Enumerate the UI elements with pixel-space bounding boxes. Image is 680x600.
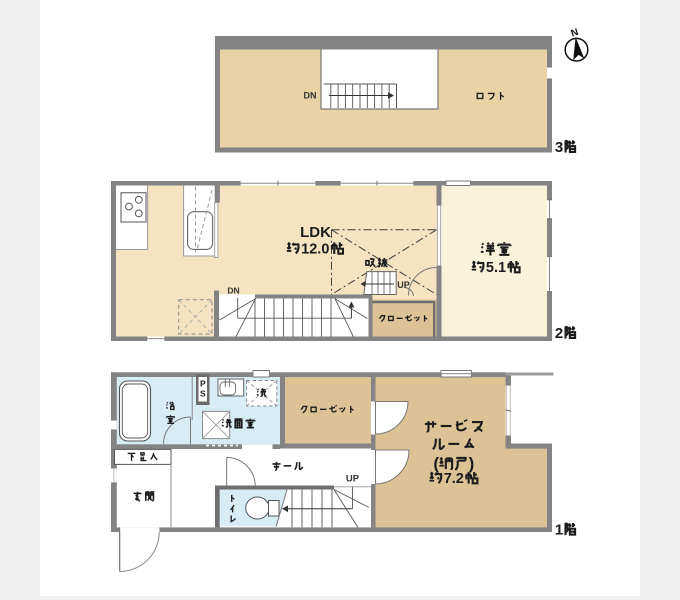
- svg-text:UP: UP: [346, 474, 360, 485]
- svg-text:7.2: 7.2: [444, 471, 464, 487]
- svg-text:UP: UP: [397, 280, 410, 290]
- svg-text:DN: DN: [304, 91, 317, 101]
- svg-text:12.0: 12.0: [301, 242, 329, 258]
- svg-text:1: 1: [555, 522, 563, 539]
- svg-text:LDK: LDK: [300, 224, 331, 241]
- svg-text:): ): [469, 454, 475, 473]
- svg-text:(: (: [433, 454, 439, 473]
- svg-text:2: 2: [555, 325, 563, 342]
- svg-text:S: S: [200, 389, 206, 399]
- svg-text:5.1: 5.1: [486, 260, 506, 276]
- svg-text:DN: DN: [227, 286, 239, 296]
- svg-text:3: 3: [555, 139, 563, 156]
- svg-text:P: P: [200, 379, 206, 389]
